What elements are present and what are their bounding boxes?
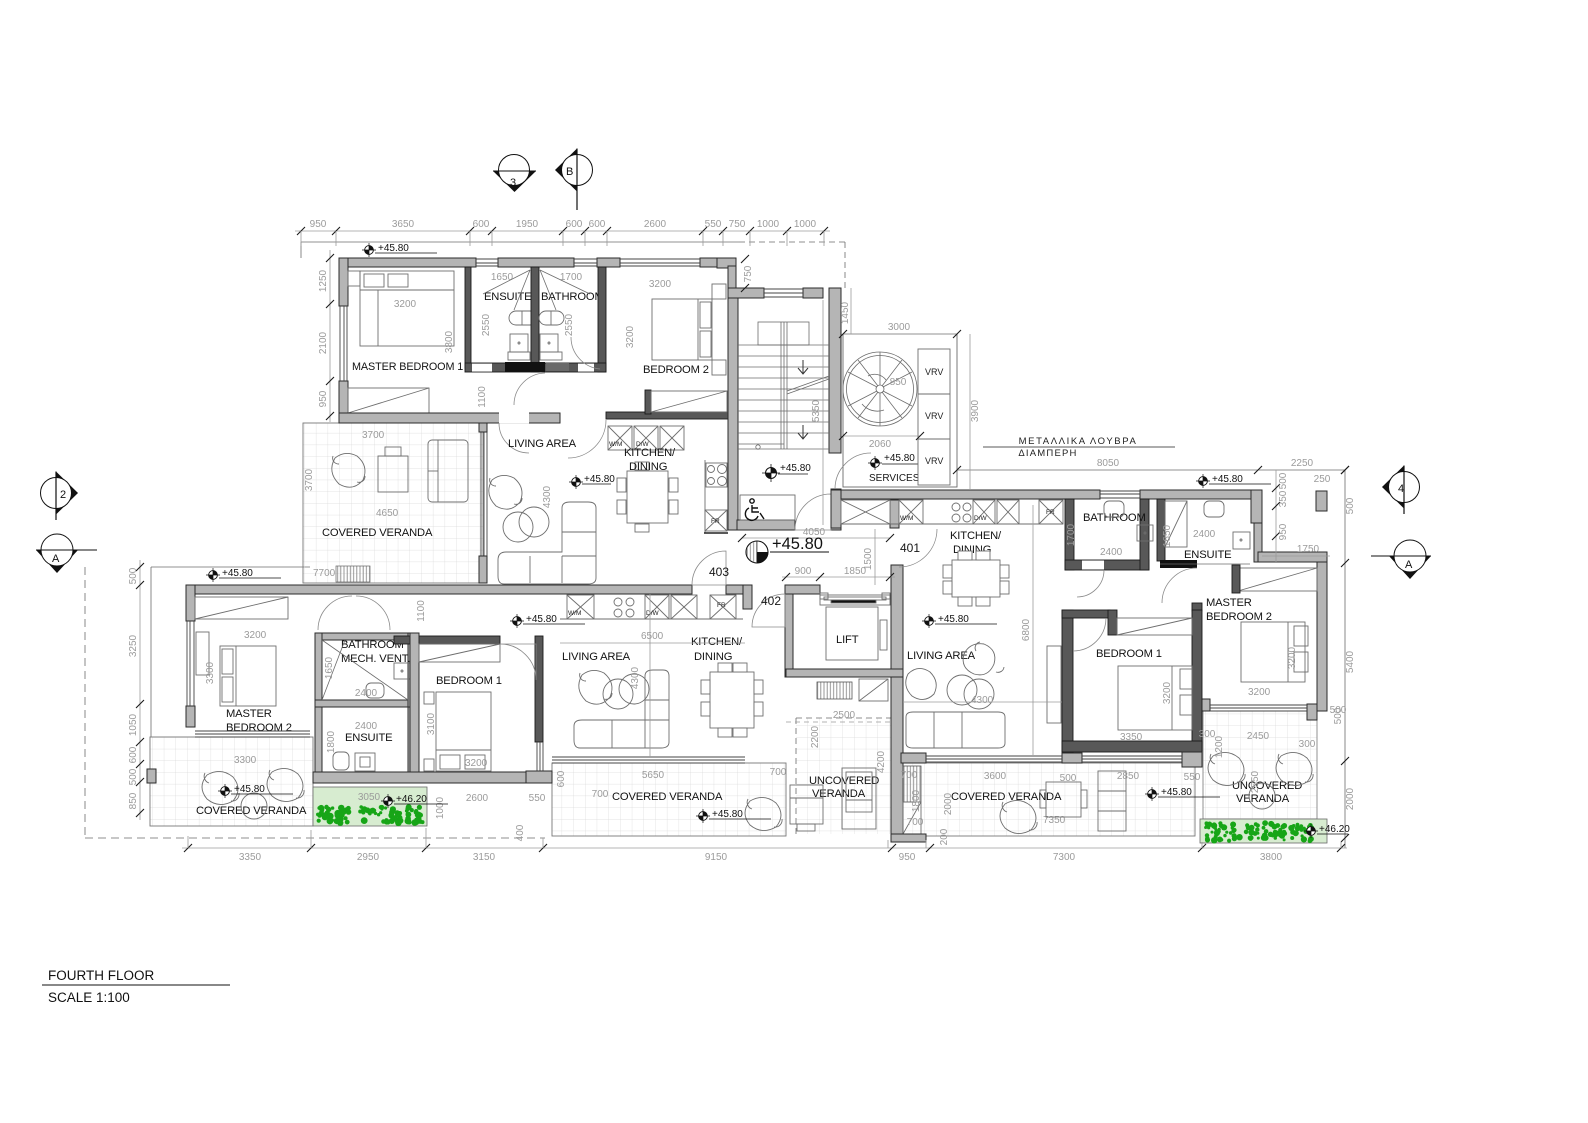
svg-text:6500: 6500 bbox=[641, 631, 664, 642]
svg-text:KITCHEN/: KITCHEN/ bbox=[950, 530, 1002, 542]
svg-text:3050: 3050 bbox=[358, 792, 381, 803]
svg-text:+45.80: +45.80 bbox=[884, 453, 915, 464]
svg-text:200: 200 bbox=[939, 828, 950, 845]
svg-text:2060: 2060 bbox=[869, 439, 892, 450]
svg-text:D/W: D/W bbox=[646, 610, 660, 617]
svg-text:5650: 5650 bbox=[642, 770, 665, 781]
svg-text:402: 402 bbox=[761, 594, 781, 608]
svg-text:3200: 3200 bbox=[1287, 646, 1298, 669]
svg-text:D/W: D/W bbox=[974, 515, 988, 522]
svg-text:700: 700 bbox=[907, 817, 924, 828]
svg-text:BEDROOM 1: BEDROOM 1 bbox=[436, 675, 502, 687]
svg-text:1700: 1700 bbox=[1066, 523, 1077, 546]
svg-text:3700: 3700 bbox=[362, 430, 385, 441]
svg-text:700: 700 bbox=[770, 767, 787, 778]
svg-text:6800: 6800 bbox=[1021, 618, 1032, 641]
svg-text:2450: 2450 bbox=[1247, 731, 1270, 742]
svg-text:900: 900 bbox=[795, 566, 812, 577]
svg-text:950: 950 bbox=[899, 852, 916, 863]
svg-text:1650: 1650 bbox=[1162, 524, 1173, 547]
svg-text:3700: 3700 bbox=[304, 468, 315, 491]
svg-text:2550: 2550 bbox=[564, 313, 575, 336]
svg-text:2: 2 bbox=[60, 489, 66, 501]
svg-text:+45.80: +45.80 bbox=[1161, 787, 1192, 798]
svg-text:2000: 2000 bbox=[943, 792, 954, 815]
svg-text:ΔΙΑΜΠΕΡΗ: ΔΙΑΜΠΕΡΗ bbox=[1018, 448, 1077, 459]
svg-text:1650: 1650 bbox=[491, 272, 514, 283]
svg-text:3300: 3300 bbox=[234, 755, 257, 766]
svg-text:2600: 2600 bbox=[644, 219, 667, 230]
svg-text:3650: 3650 bbox=[392, 219, 415, 230]
svg-text:3200: 3200 bbox=[1248, 687, 1271, 698]
svg-text:3200: 3200 bbox=[465, 758, 488, 769]
svg-text:500: 500 bbox=[1345, 497, 1356, 514]
svg-text:2400: 2400 bbox=[1100, 547, 1123, 558]
svg-text:1000: 1000 bbox=[435, 796, 446, 819]
svg-text:COVERED VERANDA: COVERED VERANDA bbox=[951, 791, 1062, 803]
svg-text:400: 400 bbox=[515, 824, 526, 841]
svg-text:3250: 3250 bbox=[128, 634, 139, 657]
svg-text:1450: 1450 bbox=[840, 301, 851, 324]
svg-text:W/M: W/M bbox=[900, 515, 913, 522]
svg-text:7300: 7300 bbox=[1053, 852, 1076, 863]
svg-text:BATHROOM: BATHROOM bbox=[1083, 512, 1146, 524]
svg-text:500: 500 bbox=[1060, 773, 1077, 784]
svg-text:350: 350 bbox=[1278, 490, 1289, 507]
svg-text:7700: 7700 bbox=[313, 568, 336, 579]
svg-text:5350: 5350 bbox=[811, 399, 822, 422]
svg-text:FOURTH FLOOR: FOURTH FLOOR bbox=[48, 968, 155, 983]
svg-text:600: 600 bbox=[566, 219, 583, 230]
svg-text:3: 3 bbox=[510, 177, 516, 189]
svg-text:FR: FR bbox=[717, 602, 726, 609]
svg-text:FR: FR bbox=[711, 518, 720, 525]
svg-text:2600: 2600 bbox=[466, 793, 489, 804]
svg-text:500: 500 bbox=[1330, 705, 1347, 716]
svg-text:3200: 3200 bbox=[394, 299, 417, 310]
svg-text:950: 950 bbox=[318, 390, 329, 407]
svg-text:1800: 1800 bbox=[911, 789, 922, 812]
svg-text:1250: 1250 bbox=[318, 269, 329, 292]
svg-text:1000: 1000 bbox=[794, 219, 817, 230]
svg-text:600: 600 bbox=[556, 770, 567, 787]
svg-text:2100: 2100 bbox=[318, 331, 329, 354]
svg-text:850: 850 bbox=[890, 377, 907, 388]
svg-text:600: 600 bbox=[589, 219, 606, 230]
svg-text:MASTER: MASTER bbox=[1206, 597, 1252, 609]
svg-text:850: 850 bbox=[128, 792, 139, 809]
svg-text:+46.20: +46.20 bbox=[396, 794, 427, 805]
svg-text:4300: 4300 bbox=[630, 666, 641, 689]
svg-text:2400: 2400 bbox=[355, 688, 378, 699]
svg-text:1750: 1750 bbox=[1297, 544, 1320, 555]
svg-text:500: 500 bbox=[128, 768, 139, 785]
svg-text:3900: 3900 bbox=[970, 399, 981, 422]
svg-text:SERVICES: SERVICES bbox=[869, 473, 920, 484]
svg-text:VRV: VRV bbox=[925, 411, 943, 421]
svg-text:3300: 3300 bbox=[205, 661, 216, 684]
svg-text:+45.80: +45.80 bbox=[772, 535, 823, 553]
svg-text:1950: 1950 bbox=[516, 219, 539, 230]
svg-text:2950: 2950 bbox=[357, 852, 380, 863]
svg-text:LIVING AREA: LIVING AREA bbox=[508, 438, 577, 450]
svg-text:ENSUITE: ENSUITE bbox=[484, 291, 531, 303]
svg-text:VERANDA: VERANDA bbox=[1236, 793, 1290, 805]
svg-text:401: 401 bbox=[900, 541, 920, 555]
svg-text:LIVING AREA: LIVING AREA bbox=[562, 651, 631, 663]
svg-text:COVERED VERANDA: COVERED VERANDA bbox=[322, 527, 433, 539]
svg-text:ENSUITE: ENSUITE bbox=[345, 732, 392, 744]
svg-text:+45.80: +45.80 bbox=[780, 463, 811, 474]
svg-text:2400: 2400 bbox=[355, 721, 378, 732]
svg-text:BEDROOM 2: BEDROOM 2 bbox=[226, 722, 292, 734]
svg-text:+45.80: +45.80 bbox=[222, 568, 253, 579]
svg-text:2200: 2200 bbox=[810, 725, 821, 748]
svg-text:403: 403 bbox=[709, 565, 729, 579]
svg-text:ΜΕΤΑΛΛΙΚΑ ΛΟΥΒΡΑ: ΜΕΤΑΛΛΙΚΑ ΛΟΥΒΡΑ bbox=[1019, 436, 1138, 447]
svg-text:1650: 1650 bbox=[324, 656, 335, 679]
svg-text:2850: 2850 bbox=[1117, 771, 1140, 782]
svg-text:2400: 2400 bbox=[1193, 529, 1216, 540]
svg-text:3200: 3200 bbox=[1162, 681, 1173, 704]
svg-text:KITCHEN/: KITCHEN/ bbox=[691, 636, 743, 648]
svg-text:1100: 1100 bbox=[416, 600, 427, 622]
svg-text:3000: 3000 bbox=[888, 322, 911, 333]
svg-text:950: 950 bbox=[310, 219, 327, 230]
svg-text:+46.20: +46.20 bbox=[1319, 824, 1350, 835]
svg-text:700: 700 bbox=[592, 789, 609, 800]
svg-text:250: 250 bbox=[1314, 474, 1331, 485]
svg-text:+45.80: +45.80 bbox=[526, 614, 557, 625]
svg-text:600: 600 bbox=[473, 219, 490, 230]
svg-text:4300: 4300 bbox=[542, 485, 553, 508]
svg-text:BEDROOM 2: BEDROOM 2 bbox=[643, 364, 709, 376]
svg-text:ENSUITE: ENSUITE bbox=[1184, 549, 1231, 561]
svg-text:2550: 2550 bbox=[1250, 770, 1261, 793]
svg-text:W/M: W/M bbox=[568, 610, 581, 617]
svg-text:550: 550 bbox=[705, 219, 722, 230]
svg-text:COVERED VERANDA: COVERED VERANDA bbox=[196, 805, 307, 817]
svg-text:2000: 2000 bbox=[1345, 787, 1356, 810]
svg-text:3800: 3800 bbox=[1260, 852, 1283, 863]
svg-text:A: A bbox=[1405, 559, 1413, 571]
svg-text:MASTER BEDROOM 1: MASTER BEDROOM 1 bbox=[352, 361, 463, 373]
svg-text:550: 550 bbox=[529, 793, 546, 804]
svg-text:+45.80: +45.80 bbox=[584, 474, 615, 485]
svg-text:3200: 3200 bbox=[244, 630, 267, 641]
svg-text:1200: 1200 bbox=[1214, 735, 1225, 758]
svg-text:300: 300 bbox=[1299, 739, 1316, 750]
svg-text:BEDROOM 2: BEDROOM 2 bbox=[1206, 611, 1272, 623]
svg-text:1500: 1500 bbox=[863, 547, 874, 570]
svg-text:550: 550 bbox=[1184, 772, 1201, 783]
svg-text:8050: 8050 bbox=[1097, 458, 1120, 469]
svg-text:1050: 1050 bbox=[128, 713, 139, 736]
svg-text:A: A bbox=[52, 553, 60, 565]
svg-text:750: 750 bbox=[743, 265, 754, 282]
svg-text:3800: 3800 bbox=[444, 330, 455, 353]
svg-text:DINING: DINING bbox=[694, 651, 732, 663]
svg-text:SCALE 1:100: SCALE 1:100 bbox=[48, 990, 130, 1005]
svg-text:3600: 3600 bbox=[984, 771, 1007, 782]
svg-text:1000: 1000 bbox=[757, 219, 780, 230]
svg-text:9150: 9150 bbox=[705, 852, 728, 863]
svg-text:4650: 4650 bbox=[376, 508, 399, 519]
svg-text:2550: 2550 bbox=[481, 313, 492, 336]
svg-text:KITCHEN/: KITCHEN/ bbox=[624, 447, 676, 459]
svg-text:500: 500 bbox=[128, 567, 139, 584]
svg-text:1800: 1800 bbox=[326, 730, 337, 753]
svg-text:+45.80: +45.80 bbox=[234, 784, 265, 795]
svg-text:+45.80: +45.80 bbox=[378, 243, 409, 254]
svg-text:DINING: DINING bbox=[629, 461, 667, 473]
svg-text:3350: 3350 bbox=[239, 852, 262, 863]
svg-text:LIFT: LIFT bbox=[836, 634, 859, 646]
svg-text:5400: 5400 bbox=[1345, 650, 1356, 673]
svg-text:4300: 4300 bbox=[971, 695, 994, 706]
svg-text:4200: 4200 bbox=[876, 750, 887, 773]
svg-text:MASTER: MASTER bbox=[226, 708, 272, 720]
svg-text:3200: 3200 bbox=[625, 325, 636, 348]
svg-text:500: 500 bbox=[1278, 472, 1289, 489]
svg-text:3200: 3200 bbox=[649, 279, 672, 290]
svg-text:4: 4 bbox=[1398, 483, 1404, 495]
svg-text:3150: 3150 bbox=[473, 852, 496, 863]
svg-text:3100: 3100 bbox=[426, 712, 437, 735]
svg-text:+45.80: +45.80 bbox=[1212, 474, 1243, 485]
svg-text:VRV: VRV bbox=[925, 367, 943, 377]
svg-text:BEDROOM 1: BEDROOM 1 bbox=[1096, 648, 1162, 660]
svg-text:UNCOVERED: UNCOVERED bbox=[1232, 780, 1302, 792]
svg-text:950: 950 bbox=[1278, 523, 1289, 540]
svg-text:W/M: W/M bbox=[609, 441, 622, 448]
svg-text:2500: 2500 bbox=[833, 710, 856, 721]
svg-text:750: 750 bbox=[729, 219, 746, 230]
svg-text:+45.80: +45.80 bbox=[712, 809, 743, 820]
svg-text:B: B bbox=[566, 166, 573, 178]
svg-text:2250: 2250 bbox=[1291, 458, 1314, 469]
svg-text:VRV: VRV bbox=[925, 456, 943, 466]
svg-text:3350: 3350 bbox=[1120, 732, 1143, 743]
svg-text:700: 700 bbox=[901, 770, 918, 781]
svg-text:FR: FR bbox=[1046, 509, 1055, 516]
svg-text:COVERED VERANDA: COVERED VERANDA bbox=[612, 791, 723, 803]
svg-text:1100: 1100 bbox=[477, 386, 488, 408]
svg-text:+45.80: +45.80 bbox=[938, 614, 969, 625]
svg-text:600: 600 bbox=[128, 746, 139, 763]
